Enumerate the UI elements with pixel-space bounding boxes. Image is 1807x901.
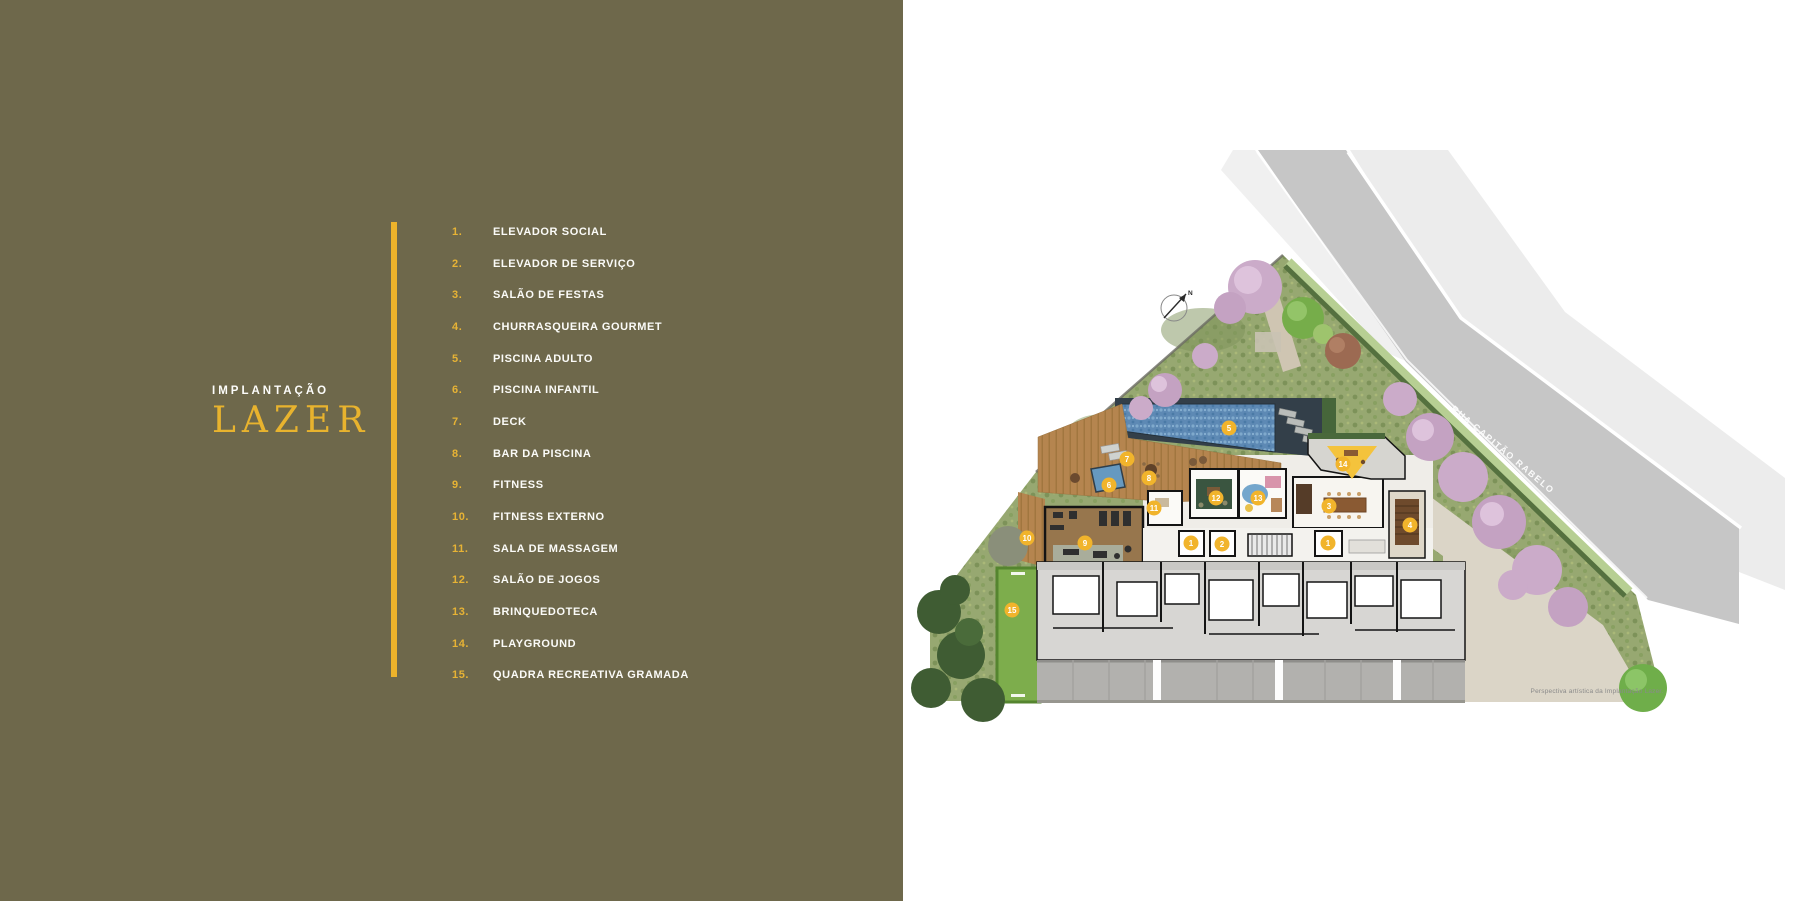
legend-item-label: FITNESS EXTERNO — [493, 511, 605, 523]
legend-item: 6.PISCINA INFANTIL — [452, 374, 782, 406]
plan-marker-number: 14 — [1339, 460, 1348, 469]
legend-item: 10.FITNESS EXTERNO — [452, 501, 782, 533]
brown-tree — [1325, 333, 1361, 369]
legend-item-number: 15. — [452, 669, 493, 681]
legend-item: 11.SALA DE MASSAGEM — [452, 533, 782, 565]
legend-item-label: FITNESS — [493, 479, 544, 491]
plan-marker-number: 1 — [1189, 539, 1194, 548]
legend-item-number: 3. — [452, 289, 493, 301]
legend-item-label: PISCINA ADULTO — [493, 353, 593, 365]
title-block: IMPLANTAÇÃO LAZER — [212, 385, 370, 441]
legend-item-label: DECK — [493, 416, 527, 428]
legend-item: 15.QUADRA RECREATIVA GRAMADA — [452, 660, 782, 692]
stair-shaft — [1248, 534, 1292, 556]
plan-marker-number: 11 — [1150, 504, 1159, 513]
legend-item: 4.CHURRASQUEIRA GOURMET — [452, 311, 782, 343]
legend-item: 3.SALÃO DE FESTAS — [452, 279, 782, 311]
legend-item-label: PISCINA INFANTIL — [493, 384, 599, 396]
legend-item-label: SALÃO DE FESTAS — [493, 289, 604, 301]
section-label: IMPLANTAÇÃO — [212, 385, 370, 397]
plan-marker-number: 6 — [1107, 481, 1112, 490]
legend-item-number: 11. — [452, 543, 493, 555]
plan-marker-number: 2 — [1220, 540, 1225, 549]
plan-marker-number: 9 — [1083, 539, 1088, 548]
legend-item-number: 9. — [452, 479, 493, 491]
legend-item: 1.ELEVADOR SOCIAL — [452, 216, 782, 248]
legend-item-number: 7. — [452, 416, 493, 428]
legend-item-label: BAR DA PISCINA — [493, 448, 591, 460]
legend-item-number: 5. — [452, 353, 493, 365]
legend-item-label: ELEVADOR DE SERVIÇO — [493, 258, 635, 270]
party-room — [1293, 477, 1383, 528]
legend-item: 8.BAR DA PISCINA — [452, 438, 782, 470]
legend-item-number: 8. — [452, 448, 493, 460]
page-title: LAZER — [212, 401, 370, 441]
plan-marker-number: 10 — [1023, 534, 1032, 543]
legend-item-number: 13. — [452, 606, 493, 618]
legend-item-label: SALA DE MASSAGEM — [493, 543, 618, 555]
apartment-floor-plan — [1037, 562, 1465, 660]
plan-marker-number: 5 — [1227, 424, 1232, 433]
brochure-page: IMPLANTAÇÃO LAZER 1.ELEVADOR SOCIAL2.ELE… — [0, 0, 1807, 901]
plan-marker-number: 1 — [1326, 539, 1331, 548]
plan-marker-number: 8 — [1147, 474, 1152, 483]
legend-item-label: PLAYGROUND — [493, 638, 576, 650]
legend-item: 2.ELEVADOR DE SERVIÇO — [452, 248, 782, 280]
legend-item-number: 6. — [452, 384, 493, 396]
olive-tree — [988, 526, 1028, 566]
legend-item-number: 12. — [452, 574, 493, 586]
north-label: N — [1188, 290, 1193, 297]
legend-item: 12.SALÃO DE JOGOS — [452, 565, 782, 597]
legend-item-label: QUADRA RECREATIVA GRAMADA — [493, 669, 689, 681]
roof-band — [1037, 660, 1465, 703]
legend-item-number: 4. — [452, 321, 493, 333]
site-plan-illustration: RUA CAPITÃO RABELO — [903, 0, 1807, 901]
legend-item-label: SALÃO DE JOGOS — [493, 574, 600, 586]
lawn-court — [997, 568, 1040, 702]
legend-item: 14.PLAYGROUND — [452, 628, 782, 660]
left-panel: IMPLANTAÇÃO LAZER 1.ELEVADOR SOCIAL2.ELE… — [0, 0, 903, 901]
legend-item: 13.BRINQUEDOTECA — [452, 596, 782, 628]
legend-item-number: 1. — [452, 226, 493, 238]
plan-marker-number: 13 — [1254, 494, 1263, 503]
plan-marker-number: 7 — [1125, 455, 1130, 464]
legend-item-label: BRINQUEDOTECA — [493, 606, 598, 618]
legend-item-number: 10. — [452, 511, 493, 523]
legend-item: 9.FITNESS — [452, 470, 782, 502]
legend-item: 7.DECK — [452, 406, 782, 438]
plan-marker-number: 15 — [1008, 606, 1017, 615]
plan-marker-number: 3 — [1327, 502, 1332, 511]
plan-caption: Perspectiva artística da Implantação Laz… — [1531, 688, 1664, 695]
legend-item-label: CHURRASQUEIRA GOURMET — [493, 321, 662, 333]
legend-item: 5.PISCINA ADULTO — [452, 343, 782, 375]
legend-item-label: ELEVADOR SOCIAL — [493, 226, 607, 238]
legend-accent-bar — [391, 222, 397, 677]
plan-marker-number: 12 — [1212, 494, 1221, 503]
legend-item-number: 2. — [452, 258, 493, 270]
plan-marker-number: 4 — [1408, 521, 1413, 530]
legend-list: 1.ELEVADOR SOCIAL2.ELEVADOR DE SERVIÇO3.… — [452, 216, 782, 691]
legend-item-number: 14. — [452, 638, 493, 650]
fitness-room — [1045, 507, 1143, 568]
